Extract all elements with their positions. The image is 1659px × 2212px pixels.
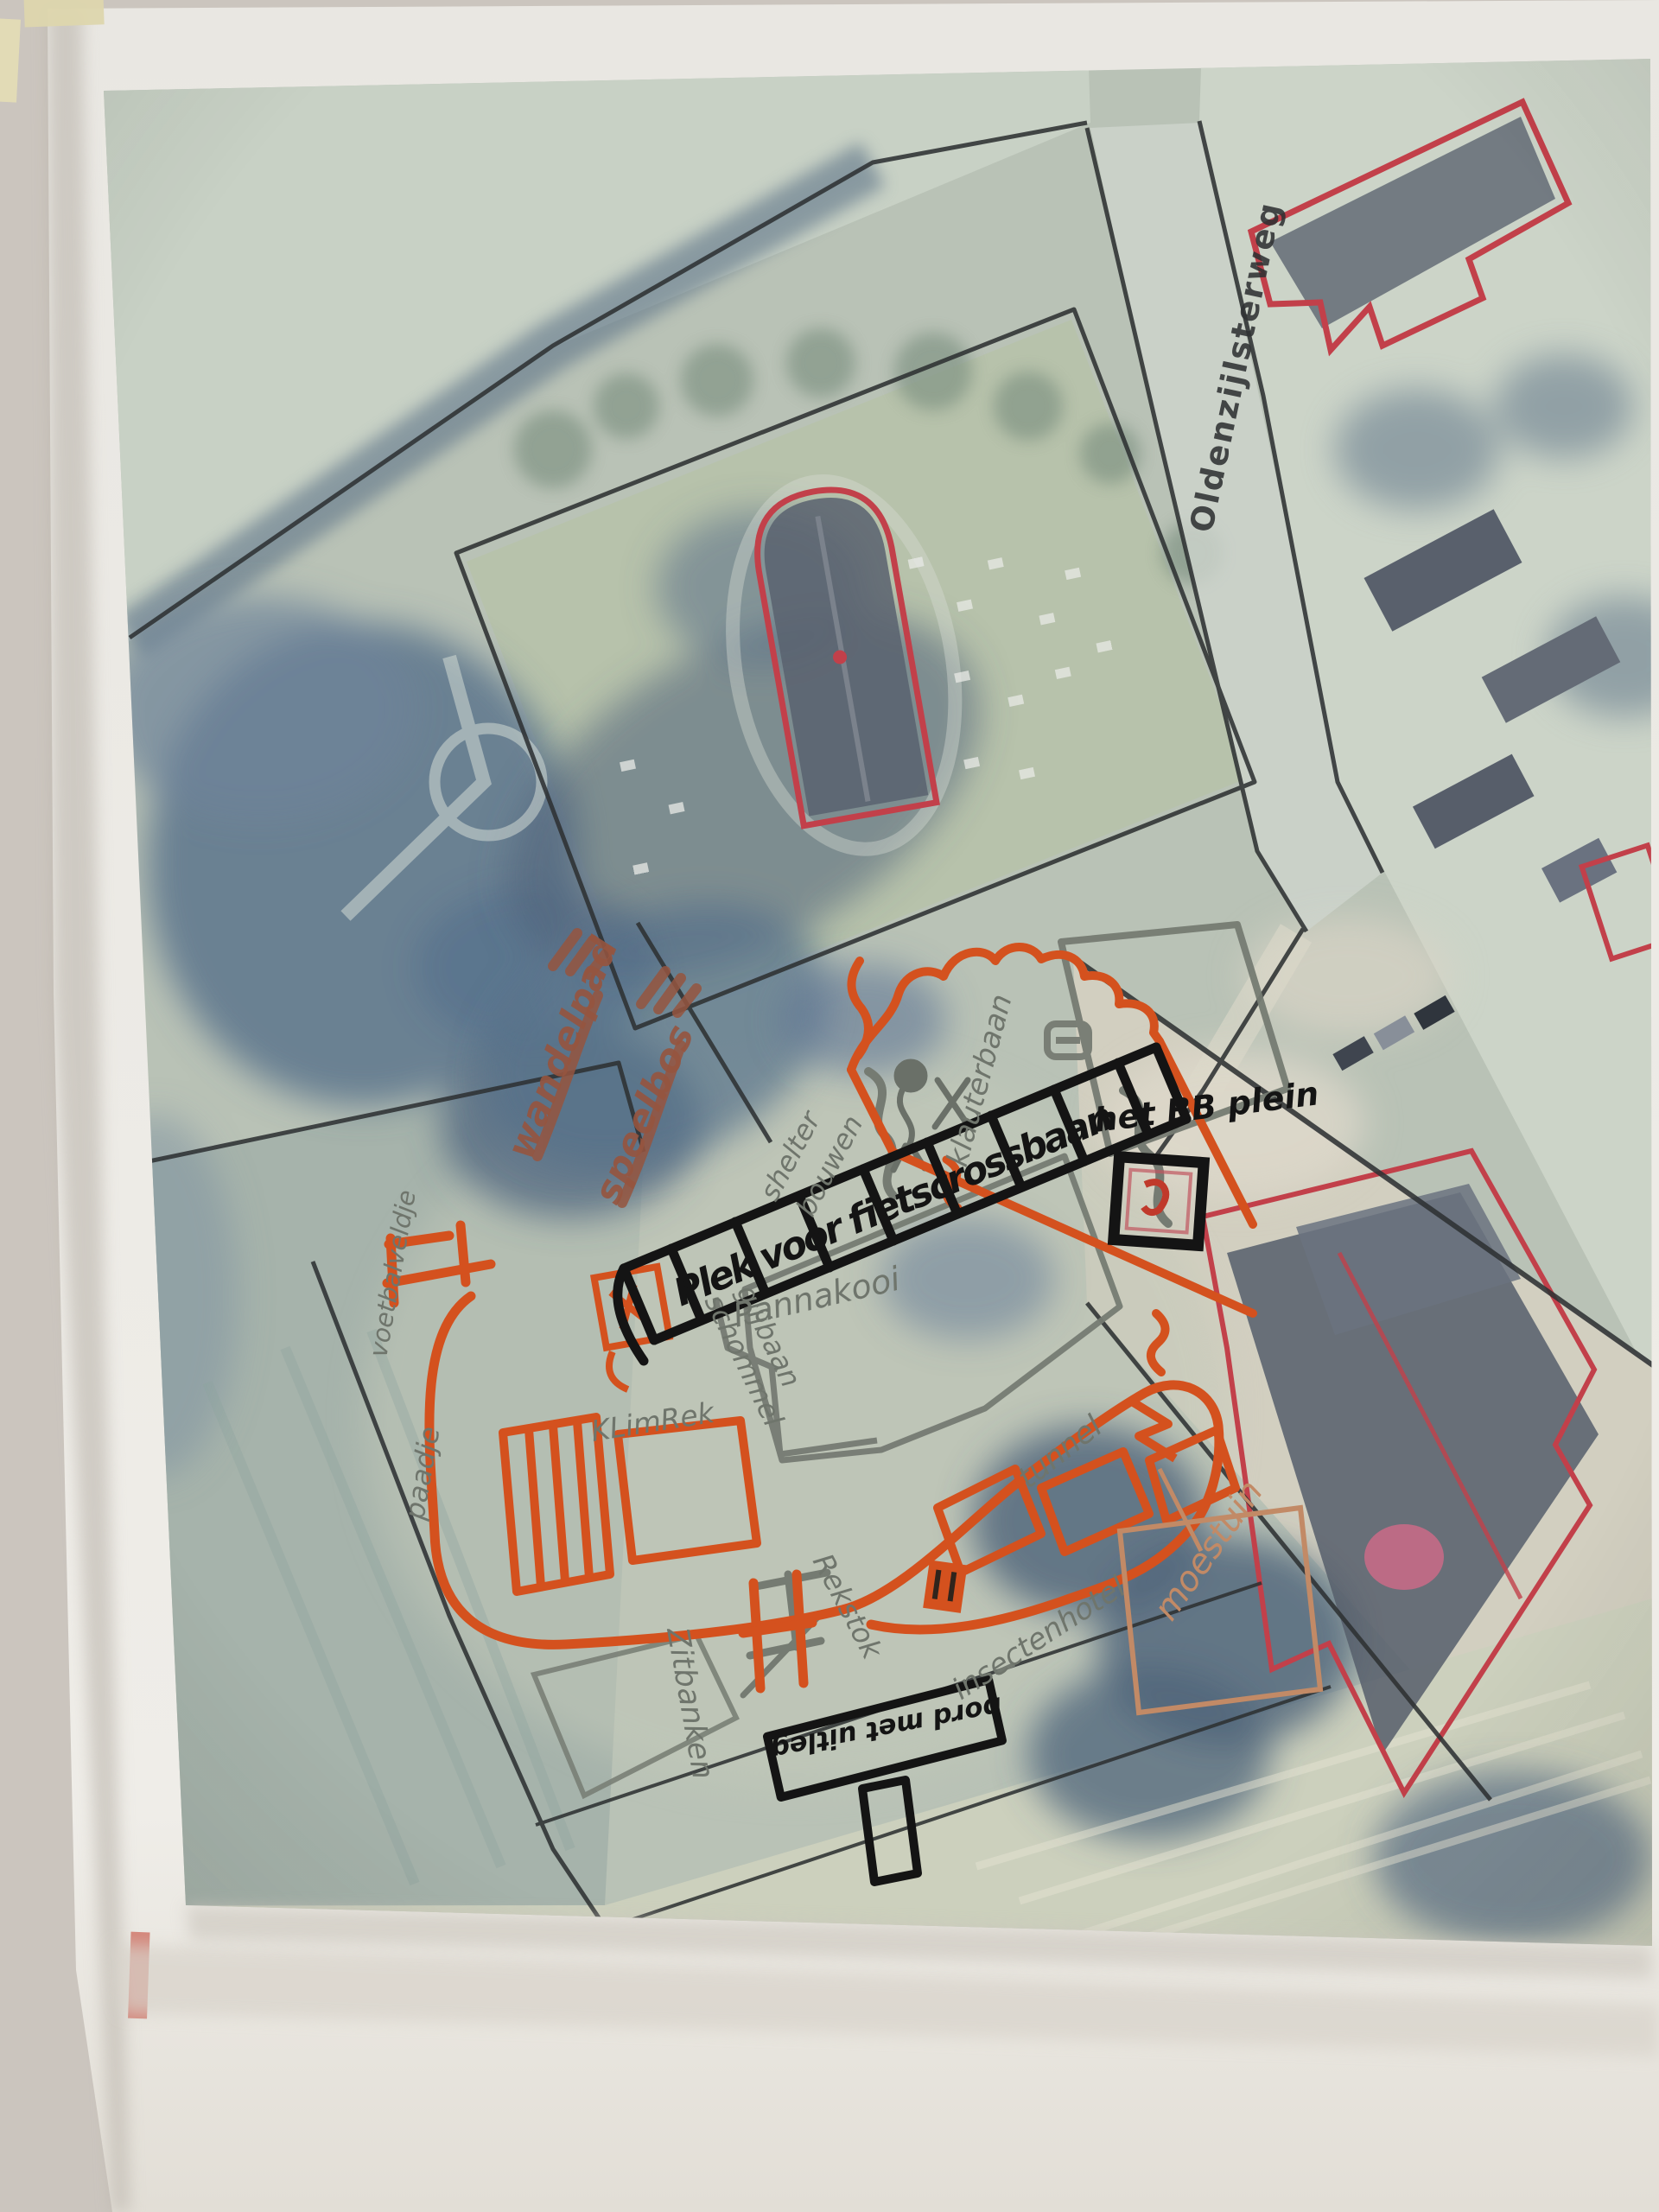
photo-of-annotated-map: Oldenzijlsterweg [0, 0, 1659, 2212]
scene-svg: Oldenzijlsterweg [0, 0, 1659, 2212]
tape-strip-top [23, 0, 104, 27]
aerial-map-print: Oldenzijlsterweg [73, 43, 1659, 1970]
